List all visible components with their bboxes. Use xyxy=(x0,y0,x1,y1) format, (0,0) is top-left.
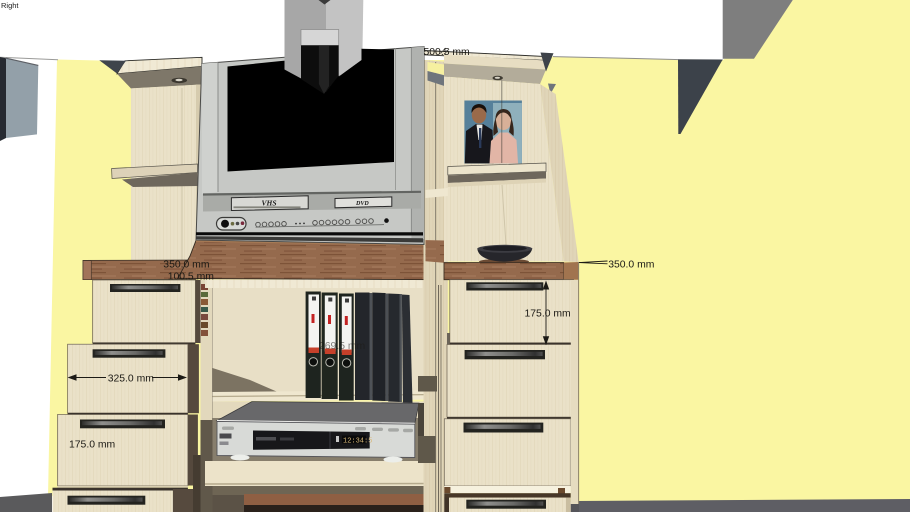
svg-text:Right: Right xyxy=(1,1,19,10)
svg-text:175.0 mm: 175.0 mm xyxy=(525,309,571,320)
svg-text:175.0 mm: 175.0 mm xyxy=(69,440,115,451)
svg-text:100.5 mm: 100.5 mm xyxy=(168,272,214,283)
svg-text:VHS: VHS xyxy=(262,198,277,207)
svg-text:12:34:5: 12:34:5 xyxy=(343,438,372,446)
svg-text:269.5 mm: 269.5 mm xyxy=(319,341,365,352)
svg-text:350.0 mm: 350.0 mm xyxy=(608,259,654,270)
svg-text:325.0 mm: 325.0 mm xyxy=(108,374,154,385)
svg-text:DVD: DVD xyxy=(355,201,369,207)
svg-text:350.0 mm: 350.0 mm xyxy=(163,260,209,271)
svg-text:500.5 mm: 500.5 mm xyxy=(424,47,470,58)
